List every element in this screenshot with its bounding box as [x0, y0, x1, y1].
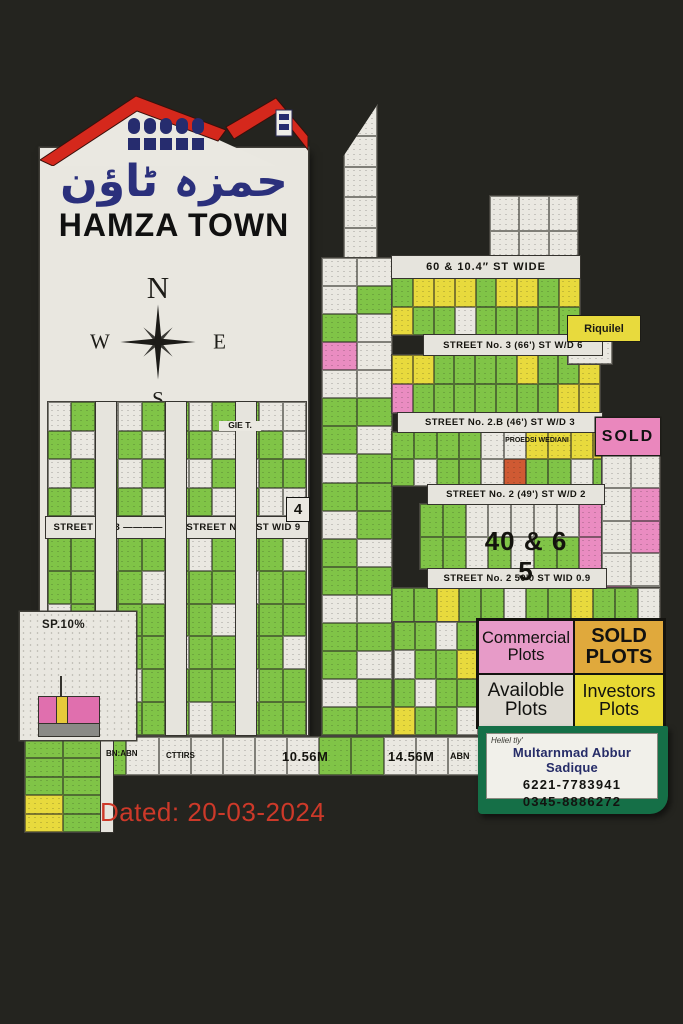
plot-cell [459, 588, 481, 622]
plot-cell [526, 588, 548, 622]
plot-cell [189, 402, 212, 431]
plot-cell [25, 814, 63, 832]
plot-cell [602, 488, 631, 521]
plot-cell [517, 278, 538, 307]
plot-cell [189, 431, 212, 460]
plot-cell [142, 604, 165, 637]
street250-row-plots [392, 588, 660, 622]
plot-cell [71, 571, 94, 604]
plot-cell [283, 402, 306, 431]
plot-cell [454, 384, 475, 413]
label-10-56m: 10.56M [282, 750, 328, 765]
plot-cell [322, 370, 357, 398]
plot-cell [189, 459, 212, 488]
plot-cell [25, 740, 63, 758]
plot-cell [48, 538, 71, 571]
plot-cell [392, 459, 414, 486]
plot-cell [413, 384, 434, 413]
plot-cell [414, 459, 436, 486]
street-label: 60 & 10.4″ ST WIDE [426, 261, 546, 273]
plot-row [322, 567, 392, 595]
plot-cell [413, 355, 434, 384]
plot-cell [212, 538, 235, 571]
plot-row [322, 539, 392, 567]
plot-cell [283, 431, 306, 460]
plot-cell [475, 384, 496, 413]
plot-row [394, 622, 478, 650]
plot-row [322, 483, 392, 511]
plot-cell [436, 679, 457, 707]
plot-cell [434, 384, 455, 413]
plot-cell [259, 538, 282, 571]
logo: حمزہ ٹاؤن HAMZA TOWN [40, 94, 308, 244]
sp10-label: SP.10% [42, 619, 85, 631]
plot-cell [322, 539, 357, 567]
poster: حمزہ ٹاؤن HAMZA TOWN N [0, 0, 683, 1024]
plot-cell [118, 431, 141, 460]
label-abn: ABN [450, 751, 470, 761]
flag-pole-icon [60, 676, 62, 696]
plot-cell [48, 571, 71, 604]
plot-row [322, 314, 392, 342]
compass-east-label: E [213, 330, 226, 355]
plot-cell [631, 488, 660, 521]
left-vertical-street-2 [166, 402, 186, 735]
plot-cell [443, 504, 466, 537]
plot-cell [357, 483, 392, 511]
plot-cell [392, 307, 413, 336]
plot-cell [322, 707, 357, 735]
plot-cell [414, 432, 436, 459]
mosque-minaret-icon [56, 696, 68, 725]
plot-cell [517, 307, 538, 336]
bottom-left-plots [25, 740, 101, 832]
plot-cell [142, 702, 165, 735]
plot-cell [631, 553, 660, 586]
plot-cell [443, 537, 466, 570]
label-proposed-wedian: PROEDSI WEDIANI [498, 437, 576, 445]
plot-cell [212, 459, 235, 488]
plot-cell [436, 707, 457, 735]
plot-cell [142, 636, 165, 669]
plot-cell [357, 567, 392, 595]
plot-cell [394, 707, 415, 735]
plot-cell [392, 384, 413, 413]
plot-row [25, 740, 101, 758]
plot-cell [638, 588, 660, 622]
street-label: STREET No. 2 (49') ST W/D 2 [446, 489, 586, 500]
label-14-56m: 14.56M [388, 750, 434, 765]
plot-cell [420, 504, 443, 537]
plot-cell [344, 105, 377, 136]
plot-row [25, 795, 101, 813]
plot-row [394, 707, 478, 735]
compass-rose: N S W E [88, 276, 228, 408]
tower-top-strip [343, 104, 378, 260]
plot-cell [212, 604, 235, 637]
plot-row [322, 426, 392, 454]
plot-cell [283, 538, 306, 571]
plot-cell [142, 488, 165, 517]
plot-cell [519, 196, 548, 231]
plot-cell [259, 488, 282, 517]
plot-cell [357, 286, 392, 314]
plot-cell [579, 504, 602, 537]
sold-badge: SOLD [596, 418, 660, 455]
label-plot-4: 4 [286, 497, 310, 522]
plot-cell [517, 384, 538, 413]
plot-cell [437, 432, 459, 459]
plot-cell [322, 511, 357, 539]
plot-cell [322, 567, 357, 595]
plot-cell [118, 538, 141, 571]
plot-cell [357, 314, 392, 342]
plot-cell [259, 604, 282, 637]
plot-cell [394, 622, 415, 650]
plot-cell [142, 669, 165, 702]
contact-card-inner: Heliel tly' Multarnmad Abbur Sadique 622… [486, 733, 658, 799]
plot-cell [457, 622, 478, 650]
compass-north-label: N [147, 270, 169, 306]
plot-cell [48, 488, 71, 517]
plot-cell [434, 278, 455, 307]
plot-cell [322, 342, 357, 370]
plot-cell [189, 636, 212, 669]
plot-cell [631, 455, 660, 488]
plot-cell [212, 702, 235, 735]
plot-cell [283, 702, 306, 735]
plot-cell [322, 314, 357, 342]
plot-cell [322, 623, 357, 651]
plot-cell [357, 595, 392, 623]
plot-cell [615, 588, 637, 622]
plot-row [394, 679, 478, 707]
plot-row [392, 588, 660, 622]
plot-cell [71, 488, 94, 517]
plot-cell [602, 553, 631, 586]
plot-row [392, 307, 580, 336]
open-space-sp10: SP.10% [20, 612, 136, 740]
plot-row [344, 228, 377, 259]
plot-cell [189, 538, 212, 571]
plot-cell [357, 707, 392, 735]
plot-cell [415, 707, 436, 735]
plot-cell [118, 571, 141, 604]
plot-cell [142, 402, 165, 431]
plot-cell [344, 197, 377, 228]
plot-row [602, 455, 660, 488]
plot-cell [357, 426, 392, 454]
plot-cell [118, 488, 141, 517]
plot-cell [63, 795, 101, 813]
plot-cell [559, 278, 580, 307]
plot-cell [434, 355, 455, 384]
plot-cell [322, 595, 357, 623]
plot-cell [420, 537, 443, 570]
plot-cell [63, 740, 101, 758]
plot-cell [504, 459, 526, 486]
plot-cell [490, 196, 519, 231]
plot-cell [496, 355, 517, 384]
contact-heading: Heliel tly' [491, 736, 653, 745]
plot-row [322, 511, 392, 539]
plot-row [25, 814, 101, 832]
plot-cell [142, 538, 165, 571]
plot-row [392, 278, 580, 307]
plot-cell [476, 307, 497, 336]
label-gie-t: GIE T. [219, 421, 261, 431]
plot-cell [25, 795, 63, 813]
plot-row [25, 777, 101, 795]
plot-cell [212, 669, 235, 702]
plot-cell [25, 777, 63, 795]
plot-cell [413, 307, 434, 336]
compass-west-label: W [90, 330, 110, 355]
plot-cell [322, 454, 357, 482]
plot-cell [212, 488, 235, 517]
plot-cell [344, 228, 377, 259]
plot-cell [496, 307, 517, 336]
plot-cell [71, 402, 94, 431]
plot-cell [259, 402, 282, 431]
plot-cell [283, 669, 306, 702]
plot-row [322, 595, 392, 623]
plot-cell [517, 355, 538, 384]
plot-cell [259, 636, 282, 669]
street-60ft-band: 60 & 10.4″ ST WIDE [392, 256, 580, 278]
plot-cell [322, 483, 357, 511]
plot-cell [357, 370, 392, 398]
plot-cell [189, 702, 212, 735]
legend-commercial-plots: Commercial Plots [478, 620, 574, 674]
plot-cell [48, 431, 71, 460]
plot-cell [457, 707, 478, 735]
plot-cell [579, 537, 602, 570]
plot-cell [593, 588, 615, 622]
plot-cell [322, 679, 357, 707]
plot-cell [189, 669, 212, 702]
plot-cell [496, 384, 517, 413]
plot-cell [322, 398, 357, 426]
plot-cell [212, 571, 235, 604]
plot-cell [191, 737, 223, 775]
plot-cell [322, 426, 357, 454]
plot-cell [189, 604, 212, 637]
logo-title: HAMZA TOWN [40, 207, 308, 244]
plot-cell [357, 258, 392, 286]
plot-cell [579, 384, 600, 413]
plot-cell [63, 758, 101, 776]
plot-cell [25, 758, 63, 776]
plot-cell [457, 679, 478, 707]
plot-row [322, 454, 392, 482]
plot-cell [357, 511, 392, 539]
plot-cell [351, 737, 383, 775]
plot-cell [436, 622, 457, 650]
plot-cell [357, 454, 392, 482]
plot-cell [283, 636, 306, 669]
plot-cell [392, 355, 413, 384]
mosque-base [38, 723, 100, 737]
plot-cell [322, 286, 357, 314]
plot-cell [504, 588, 526, 622]
plot-cell [48, 402, 71, 431]
plot-cell [283, 571, 306, 604]
legend-sold-plots: SOLD PLOTS [574, 620, 664, 674]
plot-cell [459, 432, 481, 459]
compass-star-icon [118, 302, 198, 382]
contact-card: Heliel tly' Multarnmad Abbur Sadique 622… [478, 726, 668, 814]
contact-name: Multarnmad Abbur Sadique [491, 745, 653, 775]
plot-cell [71, 459, 94, 488]
plot-cell [571, 459, 593, 486]
plot-cell [357, 651, 392, 679]
plot-cell [259, 431, 282, 460]
plot-cell [322, 258, 357, 286]
plot-cell [142, 459, 165, 488]
plot-cell [548, 588, 570, 622]
plot-cell [436, 650, 457, 678]
plot-row [392, 384, 600, 413]
plot-cell [344, 167, 377, 198]
plot-cell [357, 398, 392, 426]
plot-row [344, 105, 377, 136]
plot-cell [475, 355, 496, 384]
label-40-65: 40 & 6 5 [476, 527, 576, 587]
logo-urdu-text: حمزہ ٹاؤن [40, 160, 308, 205]
plot-row [322, 342, 392, 370]
legend: Commercial Plots SOLD PLOTS Availoble Pl… [478, 620, 664, 727]
plot-cell [357, 679, 392, 707]
plot-cell [394, 650, 415, 678]
plot-cell [71, 431, 94, 460]
plot-cell [48, 459, 71, 488]
plot-cell [415, 679, 436, 707]
plot-cell [437, 459, 459, 486]
plot-cell [392, 432, 414, 459]
plot-cell [526, 459, 548, 486]
plot-cell [259, 571, 282, 604]
plot-cell [283, 604, 306, 637]
plot-row [602, 488, 660, 521]
plot-cell [437, 588, 459, 622]
street-no2-band: STREET No. 2 (49') ST W/D 2 [428, 485, 604, 504]
plot-cell [357, 342, 392, 370]
plot-cell [548, 459, 570, 486]
plot-cell [142, 431, 165, 460]
label-cttirs: CTTIRS [166, 751, 195, 760]
plot-cell [142, 571, 165, 604]
plot-cell [602, 521, 631, 554]
plot-cell [602, 455, 631, 488]
plot-cell [259, 702, 282, 735]
plot-cell [481, 459, 503, 486]
plot-cell [344, 136, 377, 167]
plot-cell [476, 278, 497, 307]
plot-row [322, 679, 392, 707]
plot-cell [392, 278, 413, 307]
plot-cell [259, 459, 282, 488]
tower-plots [322, 258, 392, 735]
plot-cell [414, 588, 436, 622]
plot-cell [223, 737, 255, 775]
plot-cell [549, 196, 578, 231]
plot-cell [413, 278, 434, 307]
plot-cell [538, 307, 559, 336]
plot-cell [189, 488, 212, 517]
contact-phone-2: 0345-8886272 [491, 794, 653, 809]
plot-cell [118, 459, 141, 488]
plot-row [322, 258, 392, 286]
plot-cell [357, 623, 392, 651]
dated-text: Dated: 20-03-2024 [100, 797, 325, 828]
plot-cell [71, 538, 94, 571]
plot-cell [212, 431, 235, 460]
left-vertical-street-3 [236, 402, 256, 735]
plot-cell [454, 355, 475, 384]
label-bn-abn: BN:ABN [106, 749, 138, 758]
plot-cell [631, 521, 660, 554]
riquilel-label: Riquilel [568, 316, 640, 341]
plot-row [322, 623, 392, 651]
plot-row [322, 370, 392, 398]
plot-cell [434, 307, 455, 336]
plot-cell [189, 571, 212, 604]
map-canvas: حمزہ ٹاؤن HAMZA TOWN N [0, 0, 683, 1024]
plot-cell [283, 459, 306, 488]
plot-row [344, 167, 377, 198]
legend-investors-plots: Investors Plots [574, 674, 664, 728]
legend-available-plots: Availoble Plots [478, 674, 574, 728]
plot-row [344, 197, 377, 228]
plot-row [490, 196, 578, 231]
plot-cell [322, 651, 357, 679]
plot-cell [538, 384, 559, 413]
plot-row [322, 286, 392, 314]
plot-cell [558, 384, 579, 413]
street-label: STREET No. 3 (66') ST W/D 6 [443, 340, 583, 351]
plot-cell [212, 636, 235, 669]
row-60ft-plots [392, 278, 580, 335]
plot-row [602, 553, 660, 586]
plot-cell [481, 588, 503, 622]
plot-row [322, 651, 392, 679]
street-label: STREET No. 2.B (46') ST W/D 3 [425, 417, 575, 428]
plot-row [322, 398, 392, 426]
plot-cell [259, 669, 282, 702]
lower-middle-plots [394, 622, 478, 735]
plot-cell [415, 622, 436, 650]
street-no2b-band: STREET No. 2.B (46') ST W/D 3 [398, 413, 602, 432]
plot-cell [63, 777, 101, 795]
plot-cell [415, 650, 436, 678]
plot-cell [455, 307, 476, 336]
plot-cell [538, 355, 559, 384]
plot-cell [392, 588, 414, 622]
plot-cell [571, 588, 593, 622]
plot-cell [455, 278, 476, 307]
contact-phone-1: 6221-7783941 [491, 777, 653, 792]
plot-cell [538, 278, 559, 307]
plot-row [322, 707, 392, 735]
plot-cell [457, 650, 478, 678]
plot-cell [357, 539, 392, 567]
plot-row [344, 136, 377, 167]
plot-row [602, 521, 660, 554]
plot-cell [118, 402, 141, 431]
plot-cell [63, 814, 101, 832]
mosque-structure [38, 696, 100, 725]
